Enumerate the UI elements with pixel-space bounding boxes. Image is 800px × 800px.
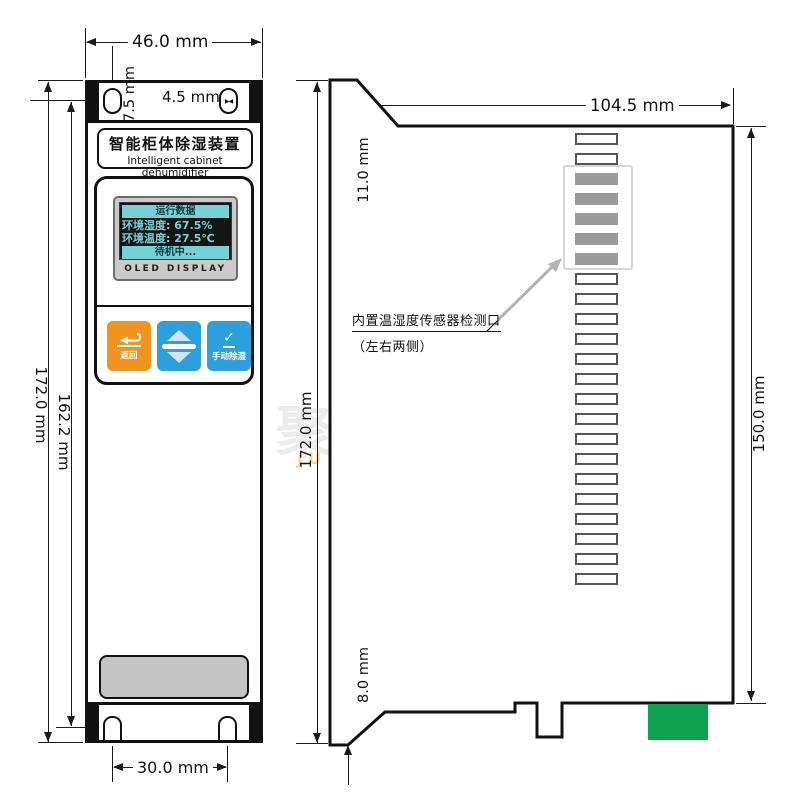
vent-slot — [575, 413, 618, 425]
sensor-vent-slot — [575, 253, 618, 265]
vent-slot — [575, 293, 618, 305]
mounting-slot-left — [103, 88, 122, 114]
foot-notch-right — [218, 716, 237, 740]
button-row: 返回 ✓ 手动除湿 — [107, 321, 251, 371]
vent-slot — [575, 333, 618, 345]
oled-temperature-row: 环境温度: 27.5℃ — [122, 232, 229, 245]
oled-screen: 运行数据 环境湿度: 67.5% 环境温度: 27.5℃ 待机中... — [119, 202, 232, 260]
nav-bar-icon — [162, 344, 196, 349]
vent-slot — [575, 393, 618, 405]
vent-slot — [575, 553, 618, 565]
bottom-grille — [99, 655, 249, 699]
front-view-body: ▶◀ 智能柜体除湿装置 Intelligent cabinet dehumidi… — [85, 80, 263, 743]
checkmark-icon: ✓ — [223, 331, 235, 348]
foot-notch-left — [103, 716, 122, 740]
dim-side-depth: 104.5 mm — [586, 96, 679, 115]
oled-header: 运行数据 — [122, 205, 229, 218]
sensor-note-line1: 内置温湿度传感器检测口 — [352, 310, 501, 332]
return-arrow-icon — [117, 331, 141, 347]
oled-display-bezel: 运行数据 环境湿度: 67.5% 环境温度: 27.5℃ 待机中... OLED… — [113, 196, 238, 281]
sensor-note-line2: （左右两侧） — [352, 336, 501, 355]
top-band-left-cap — [88, 83, 99, 120]
vent-slot — [575, 273, 618, 285]
flange-right-cap — [249, 705, 260, 740]
technical-drawing: 聚信隆诚 JU XIN LONG CHENG ▶◀ 智能柜体除湿装置 Intel… — [0, 0, 800, 800]
back-button: 返回 — [107, 321, 151, 371]
back-button-label: 返回 — [120, 349, 137, 361]
vent-slot — [575, 353, 618, 365]
oled-humidity-row: 环境湿度: 67.5% — [122, 219, 229, 232]
dim-foot-pitch: 30.0 mm — [133, 758, 213, 777]
vent-slot — [575, 573, 618, 585]
dim-right-height: 150.0 mm — [750, 376, 768, 453]
vent-slot — [575, 133, 618, 145]
nameplate-title-cn: 智能柜体除湿装置 — [99, 133, 251, 154]
oled-caption: OLED DISPLAY — [115, 264, 236, 274]
vent-slot — [575, 313, 618, 325]
flange-left-cap — [88, 705, 99, 740]
vent-slot — [575, 153, 618, 165]
arrow-down-icon — [167, 352, 191, 363]
up-down-button — [157, 321, 201, 371]
oled-status: 待机中... — [122, 246, 229, 259]
side-profile-path — [330, 80, 733, 745]
vent-slot-column — [575, 133, 618, 593]
sensor-note: 内置温湿度传感器检测口 （左右两侧） — [352, 310, 501, 355]
vent-slot — [575, 453, 618, 465]
dim-slot-width: 4.5 mm — [158, 88, 224, 106]
control-module: 运行数据 环境湿度: 67.5% 环境温度: 27.5℃ 待机中... OLED… — [94, 176, 254, 385]
nameplate: 智能柜体除湿装置 Intelligent cabinet dehumidifie… — [97, 128, 253, 169]
module-separator — [97, 305, 251, 307]
dim-top-step: 11.0 mm — [356, 137, 372, 202]
vent-slot — [575, 473, 618, 485]
bottom-mounting-flange — [88, 702, 260, 740]
dim-front-height: 172.0 mm — [32, 367, 50, 444]
arrow-up-icon — [167, 330, 191, 341]
sensor-vent-slot — [575, 213, 618, 225]
sensor-vent-slot — [575, 193, 618, 205]
manual-dehumidify-button: ✓ 手动除湿 — [207, 321, 251, 371]
manual-button-label: 手动除湿 — [212, 350, 246, 362]
dim-front-width: 46.0 mm — [128, 32, 212, 52]
dim-slot-offset: 7.5 mm — [122, 66, 138, 122]
sensor-vent-slot — [575, 233, 618, 245]
vent-slot — [575, 533, 618, 545]
sensor-vent-slot — [575, 173, 618, 185]
slot-width-arrows-icon: ▶◀ — [225, 98, 232, 105]
vent-slot — [575, 433, 618, 445]
terminal-connector-green — [648, 704, 708, 740]
dim-side-height: 172.0 mm — [297, 392, 315, 469]
vent-slot — [575, 373, 618, 385]
dim-mount-span: 162.2 mm — [55, 394, 73, 471]
vent-slot — [575, 513, 618, 525]
top-band-right-cap — [249, 83, 260, 120]
vent-slot — [575, 493, 618, 505]
dim-bottom-step: 8.0 mm — [356, 647, 372, 703]
